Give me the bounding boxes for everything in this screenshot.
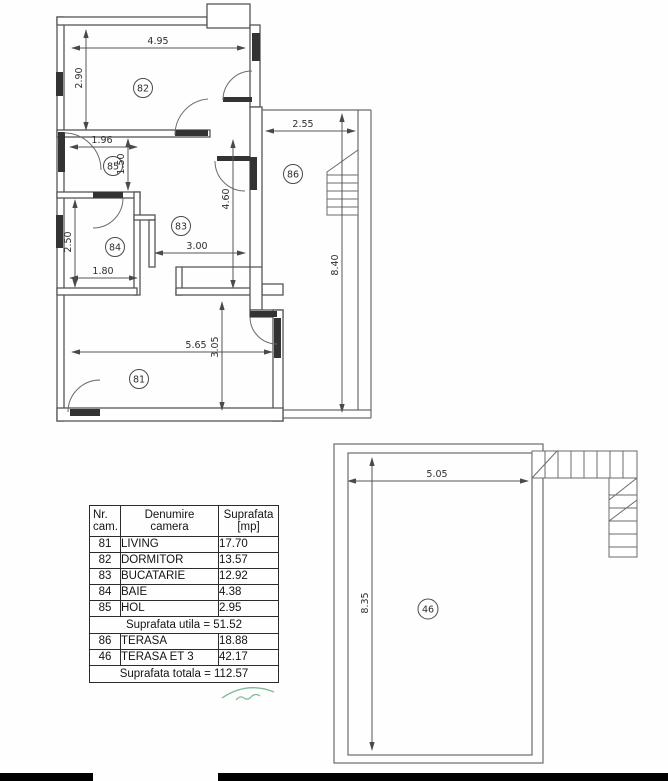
cell-nr: 84 — [90, 585, 121, 601]
cell-nr: 85 — [90, 601, 121, 617]
window-bathroom-left — [56, 215, 63, 248]
svg-text:82: 82 — [137, 84, 149, 95]
svg-text:83: 83 — [175, 222, 187, 233]
svg-text:1.50: 1.50 — [116, 153, 127, 174]
table-row: 84 BAIE 4.38 — [90, 585, 279, 601]
dim-8-35: 8.35 — [360, 458, 372, 750]
cell-nr: 81 — [90, 537, 121, 553]
scan-artifact-bar-right — [218, 773, 668, 781]
table-row: 82 DORMITOR 13.57 — [90, 553, 279, 569]
cell-area: 4.38 — [219, 585, 279, 601]
table-header-row: Nr. cam. Denumire camera Suprafata [mp] — [90, 506, 279, 537]
svg-text:84: 84 — [109, 243, 121, 254]
stamp-scribble — [222, 688, 274, 700]
cell-name: BAIE — [121, 585, 219, 601]
svg-text:2.55: 2.55 — [292, 119, 313, 130]
room-label-81: 81 — [130, 370, 149, 389]
header-nr-cam: Nr. cam. — [90, 506, 121, 537]
room-label-84: 84 — [106, 238, 125, 257]
svg-text:1.96: 1.96 — [91, 135, 112, 146]
dim-5-05: 5.05 — [348, 469, 528, 481]
dim-2-90: 2.90 — [74, 30, 86, 130]
table-row: 85 HOL 2.95 — [90, 601, 279, 617]
dim-2-50: 2.50 — [63, 200, 75, 287]
svg-text:46: 46 — [422, 605, 434, 616]
cell-area: 17.70 — [219, 537, 279, 553]
svg-text:4.95: 4.95 — [147, 36, 168, 47]
table-row: 81 LIVING 17.70 — [90, 537, 279, 553]
table-row: 46 TERASA ET 3 42.17 — [90, 650, 279, 666]
room-label-46: 46 — [418, 599, 438, 619]
room-label-82: 82 — [134, 79, 153, 98]
header-denumire: Denumire camera — [121, 506, 219, 537]
door-bedroom-right — [223, 71, 252, 102]
dim-3-05: 3.05 — [210, 302, 222, 410]
cell-area: 2.95 — [219, 601, 279, 617]
cell-name: LIVING — [121, 537, 219, 553]
header-suprafata: Suprafata [mp] — [219, 506, 279, 537]
cell-area: 42.17 — [219, 650, 279, 666]
stairs-lower-terrace — [532, 451, 637, 557]
table-row: 86 TERASA 18.88 — [90, 634, 279, 650]
cell-area: 18.88 — [219, 634, 279, 650]
svg-text:2.90: 2.90 — [74, 67, 85, 88]
cell-area: 13.57 — [219, 553, 279, 569]
floor-plan-page: 82 85 84 83 86 81 46 4.95 — [0, 0, 668, 781]
window-room82-left — [56, 72, 63, 96]
table-row: 83 BUCATARIE 12.92 — [90, 569, 279, 585]
door-bedroom-bottom — [175, 99, 208, 136]
svg-text:4.60: 4.60 — [221, 188, 232, 209]
window-room82-right — [252, 33, 260, 61]
subtotal-text: Suprafata utila = 51.52 — [90, 617, 279, 634]
svg-text:86: 86 — [287, 170, 299, 181]
doors — [58, 71, 277, 416]
dim-4-95: 4.95 — [72, 36, 245, 48]
window-living-right — [274, 318, 281, 358]
dim-5-65: 5.65 — [72, 340, 272, 352]
svg-text:5.65: 5.65 — [185, 340, 206, 351]
dim-1-80: 1.80 — [70, 266, 137, 278]
cell-name: DORMITOR — [121, 553, 219, 569]
window-kitchen-right — [250, 157, 257, 190]
subtotal-row: Suprafata utila = 51.52 — [90, 617, 279, 634]
cell-nr: 46 — [90, 650, 121, 666]
total-row: Suprafata totala = 112.57 — [90, 666, 279, 683]
svg-text:2.50: 2.50 — [63, 231, 74, 252]
area-table: Nr. cam. Denumire camera Suprafata [mp] … — [89, 505, 279, 683]
total-text: Suprafata totala = 112.57 — [90, 666, 279, 683]
cell-area: 12.92 — [219, 569, 279, 585]
cell-nr: 86 — [90, 634, 121, 650]
svg-text:3.05: 3.05 — [210, 336, 221, 357]
svg-text:81: 81 — [133, 375, 145, 386]
cell-nr: 82 — [90, 553, 121, 569]
svg-text:8.40: 8.40 — [330, 254, 341, 275]
room-label-86: 86 — [284, 165, 303, 184]
cell-name: HOL — [121, 601, 219, 617]
apartment-walls — [57, 4, 283, 421]
dim-8-40: 8.40 — [330, 114, 342, 412]
scan-artifact-bar-left — [0, 773, 93, 781]
svg-text:1.80: 1.80 — [92, 266, 113, 277]
cell-name: BUCATARIE — [121, 569, 219, 585]
door-bathroom — [93, 192, 123, 228]
svg-text:8.35: 8.35 — [360, 592, 371, 613]
door-living-bottom — [68, 380, 100, 416]
svg-text:5.05: 5.05 — [426, 469, 447, 480]
cell-name: TERASA ET 3 — [121, 650, 219, 666]
cell-name: TERASA — [121, 634, 219, 650]
dim-3-00: 3.00 — [155, 241, 245, 253]
room-label-83: 83 — [172, 217, 191, 236]
dim-4-60: 4.60 — [221, 140, 233, 288]
cell-nr: 83 — [90, 569, 121, 585]
svg-text:3.00: 3.00 — [186, 241, 207, 252]
